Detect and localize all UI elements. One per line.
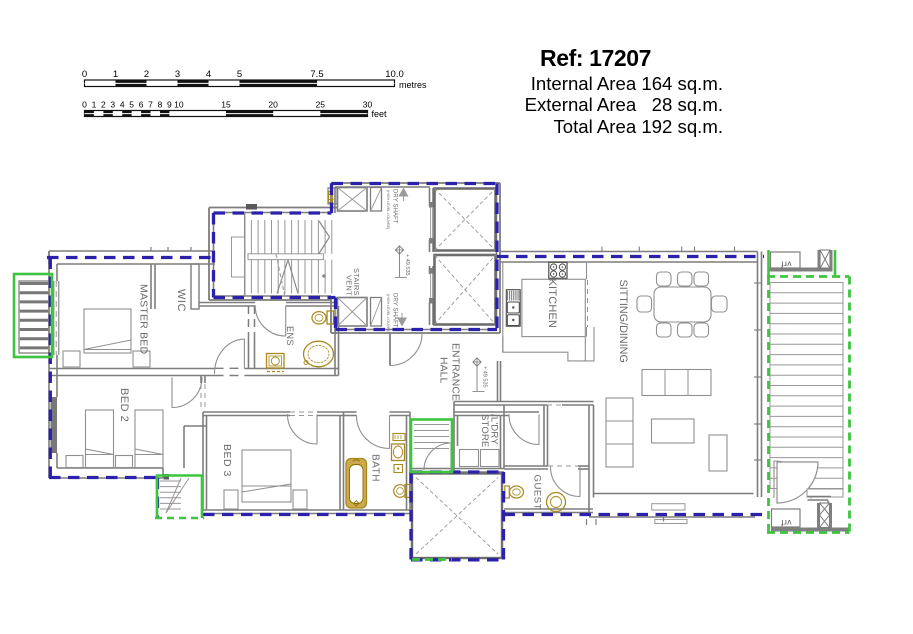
svg-text:Internal Area 164 sq.m.: Internal Area 164 sq.m. [531,73,723,94]
svg-text:metres: metres [399,80,427,90]
svg-text:3: 3 [110,100,115,110]
svg-text:vrf: vrf [781,518,792,528]
svg-text:/L'DRY: /L'DRY [489,414,500,445]
svg-text:15: 15 [221,100,231,110]
svg-text:BED 2: BED 2 [118,388,130,422]
svg-text:6: 6 [139,100,144,110]
svg-text:10.0: 10.0 [385,69,404,80]
svg-text:BATH: BATH [370,454,381,482]
svg-text:VENT: VENT [345,275,354,296]
svg-text:2: 2 [144,69,149,80]
svg-text:0: 0 [82,100,87,110]
svg-text:DRY SHAFT: DRY SHAFT [392,293,398,328]
svg-text:25: 25 [316,100,326,110]
svg-text:10: 10 [174,100,184,110]
svg-text:4: 4 [206,69,211,80]
svg-text:HALL: HALL [438,357,449,384]
svg-text:0: 0 [82,69,87,80]
svg-text:WIC: WIC [175,289,187,312]
svg-text:(HIGH LEVEL LOUVRE): (HIGH LEVEL LOUVRE) [386,294,390,333]
svg-text:STORE: STORE [479,414,490,448]
svg-text:7: 7 [148,100,153,110]
svg-text:MASTER BED: MASTER BED [138,284,150,354]
svg-text:feet: feet [372,109,388,119]
svg-text:ENS: ENS [285,326,295,346]
svg-text:(HIGH LEVEL LOUVRE): (HIGH LEVEL LOUVRE) [386,190,390,229]
svg-text:External Area 28 sq.m.: External Area 28 sq.m. [525,94,723,115]
svg-text:KITCHEN: KITCHEN [546,279,558,329]
svg-text:5: 5 [237,69,242,80]
svg-text:2: 2 [101,100,106,110]
svg-text:ENTRANCE: ENTRANCE [450,343,461,401]
svg-text:8: 8 [158,100,163,110]
svg-text:+ 49.535: + 49.535 [482,366,488,388]
svg-text:SITTING/DINING: SITTING/DINING [617,280,629,363]
svg-text:Ref: 17207: Ref: 17207 [540,45,651,71]
svg-text:7.5: 7.5 [310,69,323,80]
svg-text:30: 30 [363,100,373,110]
svg-text:9: 9 [167,100,172,110]
svg-text:5: 5 [129,100,134,110]
svg-text:3: 3 [175,69,180,80]
svg-text:4: 4 [120,100,125,110]
svg-text:BED 3: BED 3 [221,444,233,477]
svg-text:20: 20 [268,100,278,110]
svg-text:1: 1 [113,69,118,80]
svg-text:1: 1 [92,100,97,110]
svg-text:Total Area 192 sq.m.: Total Area 192 sq.m. [553,116,723,137]
svg-text:DRY SHAFT: DRY SHAFT [392,189,398,224]
svg-text:GUEST: GUEST [532,475,543,511]
svg-text:+ 49.535: + 49.535 [404,254,410,276]
